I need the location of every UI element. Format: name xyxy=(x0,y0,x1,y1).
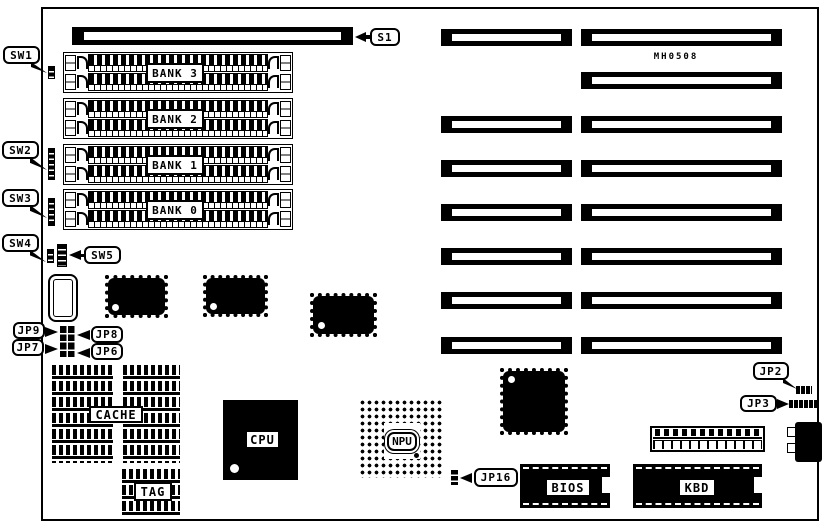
memory-slot-s1 xyxy=(72,27,353,45)
simm-clip-icon xyxy=(268,212,279,225)
memory-bank-2: BANK 2 xyxy=(63,98,293,139)
pin1-dot xyxy=(210,303,217,310)
bank3-label: BANK 3 xyxy=(146,63,204,83)
simm-clip-icon xyxy=(77,56,88,69)
memory-bank-0: BANK 0 xyxy=(63,189,293,230)
bios-notch xyxy=(602,477,612,493)
isa-slot-short-5 xyxy=(441,248,572,265)
callout-sw4-label: SW4 xyxy=(9,237,32,250)
simm-clip-icon xyxy=(77,121,88,134)
isa-slot-long-1 xyxy=(581,29,782,46)
callout-jp3-label: JP3 xyxy=(747,397,770,410)
isa-slot-long-8 xyxy=(581,337,782,354)
simm-endcap xyxy=(65,101,76,117)
simm-clip-icon xyxy=(77,167,88,180)
simm-clip-icon xyxy=(268,193,279,206)
cpu-label: CPU xyxy=(246,431,279,448)
bios-label: BIOS xyxy=(546,479,590,496)
callout-jp2: JP2 xyxy=(753,362,789,380)
callout-sw5: SW5 xyxy=(84,246,121,264)
callout-s1: S1 xyxy=(370,28,400,46)
simm-contacts xyxy=(89,130,267,136)
jumper-jp16 xyxy=(451,470,458,485)
pin1-dot xyxy=(318,322,325,329)
simm-clip-icon xyxy=(268,75,279,88)
simm-contacts xyxy=(89,84,267,90)
callout-jp9: JP9 xyxy=(13,322,45,339)
simm-endcap xyxy=(65,192,76,208)
power-divider xyxy=(653,437,762,439)
isa-slot-long-5 xyxy=(581,204,782,221)
dip-switch-sw1 xyxy=(48,66,55,79)
callout-sw3: SW3 xyxy=(2,189,39,207)
callout-jp6: JP6 xyxy=(91,343,123,360)
npu-pin1-dot xyxy=(414,453,419,458)
kbd-label-text: KBD xyxy=(685,481,710,495)
simm-endcap xyxy=(65,55,76,71)
isa-slot-short-4 xyxy=(441,204,572,221)
tag-label-text: TAG xyxy=(141,485,166,499)
isa-slot-short-2 xyxy=(441,116,572,133)
cache-label-text: CACHE xyxy=(95,408,136,422)
dip-switch-sw2 xyxy=(48,148,55,180)
kbd-dashed-line xyxy=(636,467,759,469)
simm-endcap xyxy=(65,211,76,227)
isa-slot-long-6 xyxy=(581,248,782,265)
callout-jp9-label: JP9 xyxy=(18,324,41,337)
bios-dashed-line xyxy=(523,503,607,505)
simm-clip-icon xyxy=(268,56,279,69)
isa-slot-short-1 xyxy=(441,29,572,46)
callout-jp7-label: JP7 xyxy=(17,341,40,354)
simm-endcap xyxy=(280,166,291,182)
callout-jp8-label: JP8 xyxy=(96,328,119,341)
isa-slot-short-3 xyxy=(441,160,572,177)
simm-endcap xyxy=(280,147,291,163)
simm-endcap xyxy=(280,74,291,90)
power-connector xyxy=(650,426,765,452)
bank0-label: BANK 0 xyxy=(146,200,204,220)
isa-slot-short-7 xyxy=(441,337,572,354)
callout-sw4: SW4 xyxy=(2,234,39,252)
memory-bank-3: BANK 3 xyxy=(63,52,293,93)
pin1-dot xyxy=(230,464,239,473)
simm-clip-icon xyxy=(77,102,88,115)
jumper-block-jp6-jp9 xyxy=(60,326,75,357)
pin1-dot xyxy=(112,304,119,311)
bios-label-text: BIOS xyxy=(552,481,585,495)
simm-endcap xyxy=(280,101,291,117)
bios-chip: BIOS xyxy=(520,464,610,508)
simm-clip-icon xyxy=(268,148,279,161)
simm-contacts xyxy=(89,176,267,182)
motherboard-diagram: S1 BANK 3 xyxy=(0,0,825,527)
cache-label: CACHE xyxy=(89,406,143,423)
dip-switch-sw4 xyxy=(47,249,54,263)
simm-clip-icon xyxy=(268,121,279,134)
callout-sw1-label: SW1 xyxy=(10,49,33,62)
kbd-dashed-line xyxy=(636,503,759,505)
qfp-chip-2 xyxy=(203,275,268,317)
npu-socket: NPU xyxy=(358,398,442,478)
callout-jp16-label: JP16 xyxy=(481,471,512,484)
callout-sw5-label: SW5 xyxy=(91,249,114,262)
callout-jp2-label: JP2 xyxy=(760,365,783,378)
callout-s1-label: S1 xyxy=(377,31,392,44)
isa-slot-long-7 xyxy=(581,292,782,309)
power-pins xyxy=(653,429,762,436)
callout-jp3: JP3 xyxy=(740,395,777,412)
bios-dashed-line xyxy=(523,467,607,469)
simm-endcap xyxy=(280,211,291,227)
chipset-qfp-chip xyxy=(500,368,568,435)
kbd-chip: KBD xyxy=(633,464,762,508)
qfp-chip-3 xyxy=(310,293,377,337)
bank2-label: BANK 2 xyxy=(146,109,204,129)
callout-sw1: SW1 xyxy=(3,46,40,64)
simm-endcap xyxy=(65,74,76,90)
simm-endcap xyxy=(65,120,76,136)
simm-clip-icon xyxy=(77,148,88,161)
simm-endcap xyxy=(280,55,291,71)
simm-endcap xyxy=(280,120,291,136)
kbd-notch xyxy=(754,477,764,493)
oscillator xyxy=(48,274,78,322)
simm-clip-icon xyxy=(77,193,88,206)
callout-sw3-label: SW3 xyxy=(9,192,32,205)
simm-clip-icon xyxy=(77,75,88,88)
isa-slot-short-6 xyxy=(441,292,572,309)
npu-label: NPU xyxy=(387,432,417,451)
qfp-chip-1 xyxy=(105,275,168,318)
tag-label: TAG xyxy=(134,482,172,501)
bank1-label: BANK 1 xyxy=(146,155,204,175)
cpu-chip: CPU xyxy=(223,400,298,480)
jumper-jp3 xyxy=(789,400,818,408)
isa-slot-long-3 xyxy=(581,116,782,133)
keyboard-connector xyxy=(795,422,822,462)
dip-switch-sw3 xyxy=(48,198,55,226)
kbd-label: KBD xyxy=(679,479,715,496)
callout-jp8: JP8 xyxy=(91,326,123,343)
simm-clip-icon xyxy=(268,102,279,115)
isa-slot-long-2 xyxy=(581,72,782,89)
cpu-label-text: CPU xyxy=(250,433,275,447)
keyboard-connector-pin xyxy=(787,427,796,437)
simm-clip-icon xyxy=(268,167,279,180)
simm-clip-icon xyxy=(77,212,88,225)
part-number-text: MH0508 xyxy=(640,52,712,62)
callout-jp16: JP16 xyxy=(474,468,518,487)
callout-sw2: SW2 xyxy=(2,141,39,159)
simm-endcap xyxy=(65,166,76,182)
memory-bank-1: BANK 1 xyxy=(63,144,293,185)
simm-contacts xyxy=(89,221,267,227)
isa-slot-long-4 xyxy=(581,160,782,177)
keyboard-connector-pin xyxy=(787,443,796,453)
callout-jp6-label: JP6 xyxy=(96,345,119,358)
jumper-jp2 xyxy=(796,386,812,394)
dip-switch-sw5 xyxy=(57,244,67,267)
simm-endcap xyxy=(65,147,76,163)
callout-sw2-label: SW2 xyxy=(9,144,32,157)
pin1-dot xyxy=(508,376,515,383)
callout-jp7: JP7 xyxy=(12,339,44,356)
power-cells xyxy=(653,440,762,449)
simm-endcap xyxy=(280,192,291,208)
